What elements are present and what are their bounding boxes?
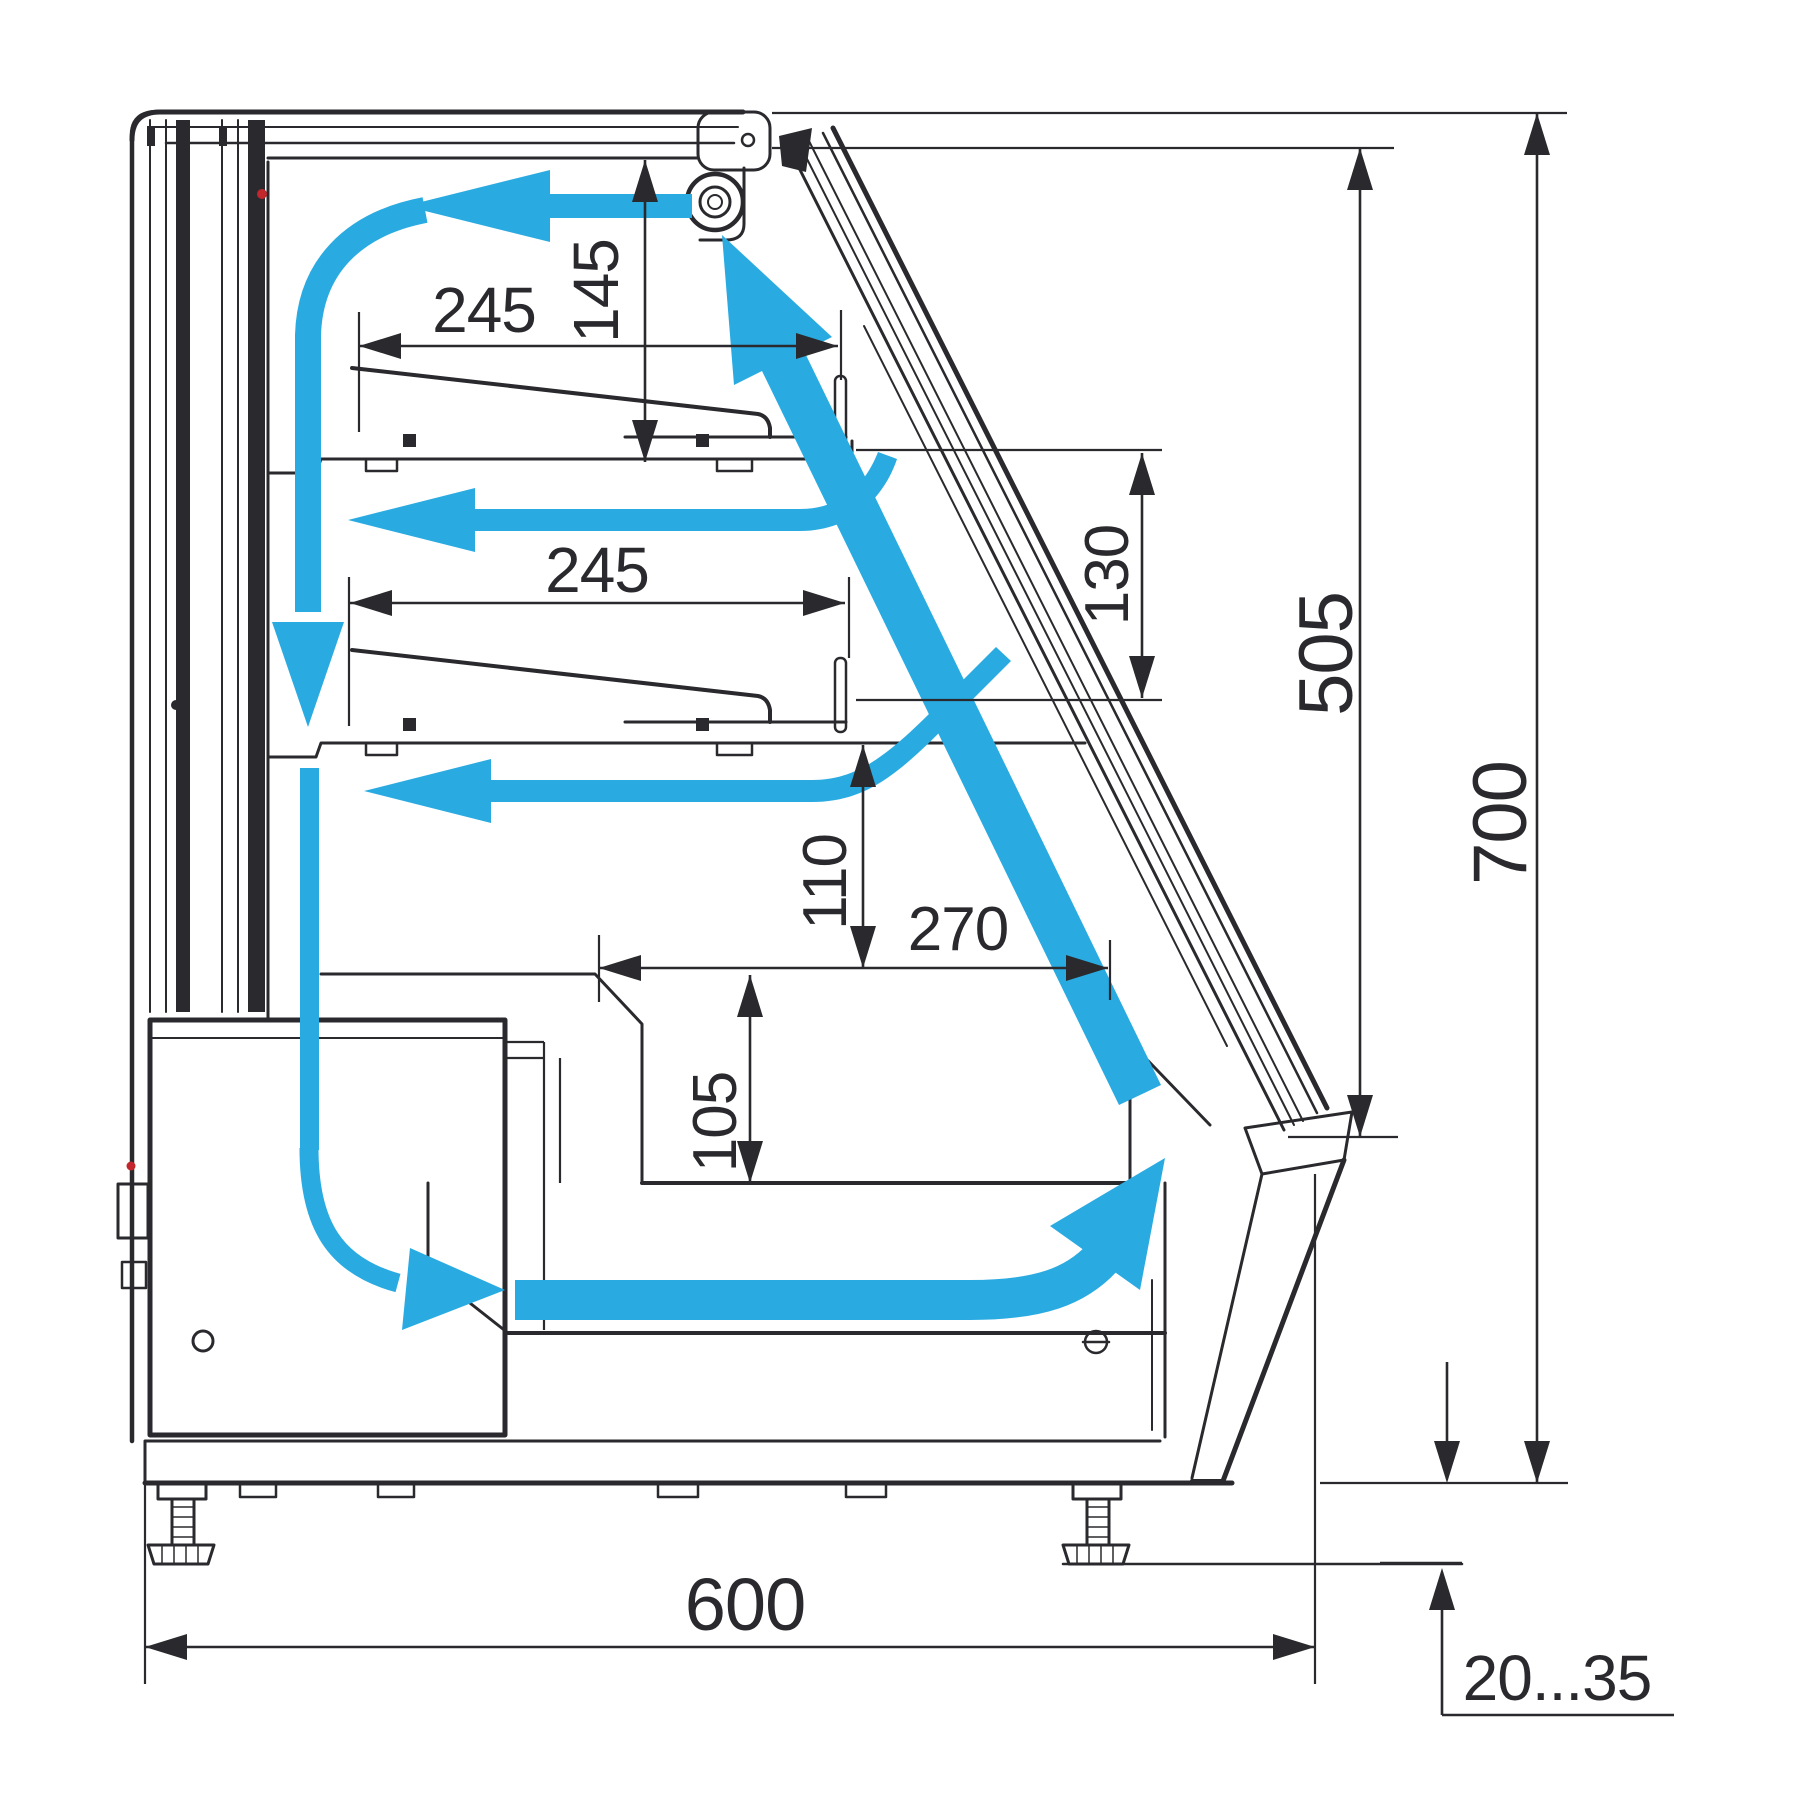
dimension-label: 130 bbox=[1073, 525, 1142, 625]
airflow-back-curve bbox=[308, 210, 425, 612]
dimension-label: 700 bbox=[1458, 761, 1543, 885]
glass-hinge bbox=[698, 112, 770, 170]
dimension-label: 505 bbox=[1284, 592, 1369, 716]
airflow-bottom-duct bbox=[515, 1258, 1102, 1300]
wall-screw-dot bbox=[171, 700, 181, 710]
technical-drawing-page: 145 245 245 130 505 bbox=[0, 0, 1800, 1813]
fan-icon bbox=[687, 168, 744, 240]
airflow-back-duct-line bbox=[300, 768, 319, 1150]
dimension-label: 20...35 bbox=[1463, 1642, 1652, 1714]
airflow-down-arrowhead bbox=[272, 622, 344, 727]
compartment-hole bbox=[193, 1331, 213, 1351]
dimension-label: 600 bbox=[685, 1563, 805, 1646]
glass-clamp bbox=[779, 128, 812, 172]
front-panel bbox=[1083, 1112, 1352, 1481]
dimension-label: 145 bbox=[560, 239, 632, 343]
foot-right bbox=[1063, 1483, 1129, 1564]
shelf-upper bbox=[268, 368, 852, 473]
indicator-dot bbox=[127, 1162, 136, 1171]
airflow-machine-room-curve bbox=[309, 1148, 398, 1283]
dim-well-depth-105: 105 bbox=[681, 975, 763, 1183]
base-assembly bbox=[145, 1441, 1462, 1564]
dimension-label: 110 bbox=[791, 834, 860, 930]
display-case-cross-section: 145 245 245 130 505 bbox=[0, 0, 1800, 1813]
dimension-label: 245 bbox=[432, 274, 536, 346]
dimension-label: 245 bbox=[545, 534, 649, 606]
indicator-dot bbox=[257, 189, 267, 199]
front-sill bbox=[1245, 1112, 1352, 1174]
dimension-label: 105 bbox=[681, 1072, 750, 1172]
foot-left bbox=[148, 1483, 214, 1564]
top-canopy bbox=[132, 112, 812, 172]
dimension-label: 270 bbox=[908, 895, 1008, 964]
dim-shelf-mid-245: 245 bbox=[349, 534, 849, 726]
dim-foot-adjust-20-35: 20...35 bbox=[1380, 1362, 1674, 1715]
hinge-pivot bbox=[742, 134, 754, 146]
dimensions: 145 245 245 130 505 bbox=[145, 113, 1674, 1715]
display-well bbox=[321, 974, 1210, 1437]
wall-screw-dot bbox=[250, 420, 262, 432]
